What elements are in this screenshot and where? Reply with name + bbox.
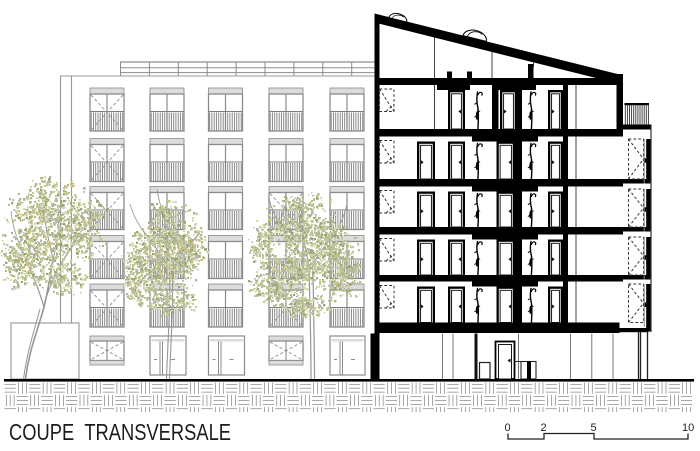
svg-text:COUPE TRANSVERSALE: COUPE TRANSVERSALE: [9, 419, 231, 445]
svg-text:5: 5: [591, 422, 597, 434]
svg-text:10: 10: [682, 422, 694, 434]
svg-text:2: 2: [541, 422, 547, 434]
svg-text:0: 0: [505, 422, 511, 434]
